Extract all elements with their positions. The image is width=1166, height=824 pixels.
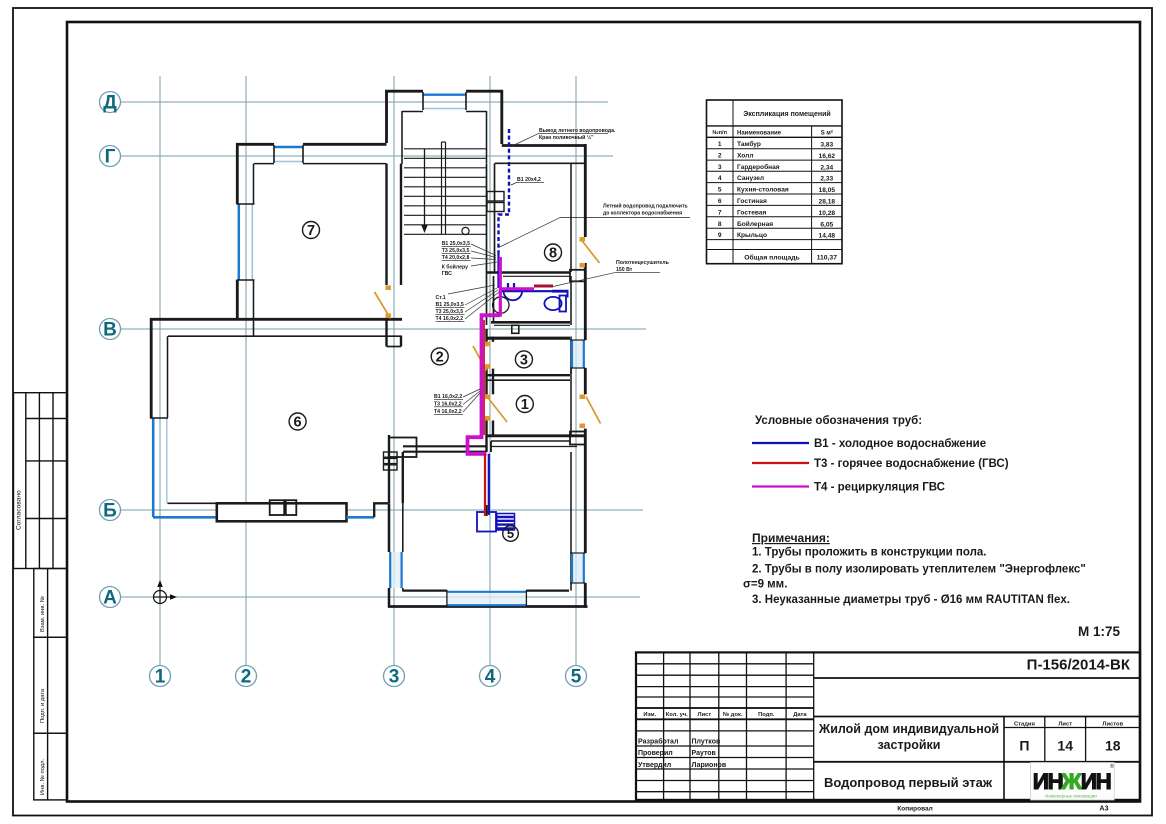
svg-text:Гостевая: Гостевая xyxy=(737,209,767,216)
svg-text:1. Трубы проложить в конструкц: 1. Трубы проложить в конструкции пола. xyxy=(752,547,987,559)
svg-text:Кол. уч.: Кол. уч. xyxy=(666,712,688,718)
svg-text:14: 14 xyxy=(1057,738,1073,754)
svg-text:ГВС: ГВС xyxy=(442,271,452,277)
svg-text:Инженерные инновации: Инженерные инновации xyxy=(1045,794,1097,799)
svg-text:застройки: застройки xyxy=(878,738,941,752)
svg-text:6,05: 6,05 xyxy=(820,221,833,228)
svg-text:5: 5 xyxy=(507,526,514,541)
svg-text:σ=9 мм.: σ=9 мм. xyxy=(743,579,787,591)
svg-text:А: А xyxy=(103,588,117,609)
svg-text:5: 5 xyxy=(571,667,582,688)
svg-text:П: П xyxy=(1019,738,1029,754)
svg-text:1: 1 xyxy=(718,141,722,148)
svg-text:Лист: Лист xyxy=(1058,722,1072,728)
svg-text:1: 1 xyxy=(521,397,529,413)
svg-text:Тамбур: Тамбур xyxy=(737,140,761,148)
svg-text:110,37: 110,37 xyxy=(817,255,838,262)
svg-text:Изм.: Изм. xyxy=(643,712,656,718)
svg-text:6: 6 xyxy=(718,198,722,205)
svg-text:Стадия: Стадия xyxy=(1014,722,1035,728)
svg-text:10,28: 10,28 xyxy=(819,210,836,217)
svg-text:Инв. № подл.: Инв. № подл. xyxy=(40,759,46,795)
svg-text:В: В xyxy=(103,320,117,341)
svg-text:16,62: 16,62 xyxy=(819,153,836,160)
svg-text:14,48: 14,48 xyxy=(819,233,836,240)
svg-text:до коллектора водоснабжения: до коллектора водоснабжения xyxy=(603,210,682,217)
svg-text:Взам. инв. №: Взам. инв. № xyxy=(40,596,46,632)
svg-text:№п/п: №п/п xyxy=(712,130,727,136)
svg-text:Б: Б xyxy=(103,501,117,522)
svg-text:Условные обозначения труб:: Условные обозначения труб: xyxy=(755,415,922,427)
svg-text:Летний водопровод подключить: Летний водопровод подключить xyxy=(603,203,688,210)
svg-text:№ док.: № док. xyxy=(723,712,743,718)
svg-text:Подп. и дата: Подп. и дата xyxy=(40,688,46,723)
svg-text:Кухня-столовая: Кухня-столовая xyxy=(737,187,789,194)
svg-text:S м²: S м² xyxy=(821,130,833,137)
svg-text:28,18: 28,18 xyxy=(819,199,836,206)
svg-text:Ж: Ж xyxy=(1060,769,1082,794)
svg-text:Листов: Листов xyxy=(1102,722,1123,728)
svg-text:2: 2 xyxy=(436,349,444,365)
svg-text:Холл: Холл xyxy=(737,152,754,159)
svg-text:7: 7 xyxy=(718,209,722,216)
svg-text:Утвердил: Утвердил xyxy=(638,762,671,769)
svg-text:Наименование: Наименование xyxy=(737,131,782,137)
svg-text:Жилой дом индивидуальной: Жилой дом индивидуальной xyxy=(818,722,999,736)
svg-text:4: 4 xyxy=(485,667,496,688)
svg-text:3,83: 3,83 xyxy=(820,142,833,149)
svg-text:18: 18 xyxy=(1105,738,1121,754)
svg-text:Санузел: Санузел xyxy=(737,175,764,182)
svg-text:3: 3 xyxy=(718,164,722,171)
svg-text:Копировал: Копировал xyxy=(897,806,932,813)
svg-text:®: ® xyxy=(1110,763,1114,770)
svg-text:3: 3 xyxy=(520,352,528,368)
svg-text:Подп.: Подп. xyxy=(758,712,775,718)
svg-text:М 1:75: М 1:75 xyxy=(1078,624,1121,639)
svg-text:Г: Г xyxy=(105,147,116,168)
svg-text:2. Трубы в полу изолировать ут: 2. Трубы в полу изолировать утеплителем … xyxy=(752,564,1086,576)
svg-text:6: 6 xyxy=(294,415,302,431)
svg-text:Кран поливочный ½": Кран поливочный ½" xyxy=(539,134,594,141)
svg-text:А3: А3 xyxy=(1100,806,1109,813)
svg-text:Т3 - горячее водоснабжение (ГВ: Т3 - горячее водоснабжение (ГВС) xyxy=(814,458,1009,470)
svg-text:Гостиная: Гостиная xyxy=(737,198,767,205)
svg-text:Т4 - рециркуляция ГВС: Т4 - рециркуляция ГВС xyxy=(814,482,945,494)
svg-text:2,34: 2,34 xyxy=(820,164,833,171)
svg-text:3. Неуказанные диаметры труб -: 3. Неуказанные диаметры труб - Ø16 мм RA… xyxy=(752,594,1070,606)
svg-text:Плутков: Плутков xyxy=(692,739,721,746)
svg-text:7: 7 xyxy=(307,223,315,239)
svg-text:ИН: ИН xyxy=(1033,769,1063,794)
svg-text:Гардеробная: Гардеробная xyxy=(737,163,780,171)
svg-text:Проверил: Проверил xyxy=(638,750,673,757)
svg-text:В1 - холодное водоснабжение: В1 - холодное водоснабжение xyxy=(814,438,986,450)
svg-text:Ст.1: Ст.1 xyxy=(436,295,446,301)
svg-text:Общая площадь: Общая площадь xyxy=(744,254,800,262)
svg-text:Примечания:: Примечания: xyxy=(752,531,830,545)
svg-text:18,05: 18,05 xyxy=(819,187,836,194)
svg-text:П-156/2014-ВК: П-156/2014-ВК xyxy=(1027,657,1131,674)
svg-text:2: 2 xyxy=(718,152,722,159)
svg-text:Раутов: Раутов xyxy=(692,750,717,757)
svg-text:ИН: ИН xyxy=(1081,769,1111,794)
svg-text:Д: Д xyxy=(103,93,117,114)
svg-text:Крыльцо: Крыльцо xyxy=(737,232,767,239)
svg-text:К бойлеру: К бойлеру xyxy=(442,264,468,271)
svg-text:8: 8 xyxy=(549,246,557,262)
svg-text:Разработал: Разработал xyxy=(638,738,678,746)
svg-text:Водопровод первый этаж: Водопровод первый этаж xyxy=(824,775,993,790)
svg-text:Лист: Лист xyxy=(698,712,712,718)
svg-text:1: 1 xyxy=(155,667,166,688)
svg-text:9: 9 xyxy=(718,232,722,239)
svg-text:2,33: 2,33 xyxy=(820,176,833,183)
svg-text:Ларионов: Ларионов xyxy=(692,762,727,769)
svg-text:Дата: Дата xyxy=(793,712,807,718)
svg-text:Согласовано: Согласовано xyxy=(16,490,23,530)
svg-text:2: 2 xyxy=(241,667,252,688)
svg-text:3: 3 xyxy=(389,667,400,688)
svg-text:Экспликация помещений: Экспликация помещений xyxy=(743,110,830,118)
svg-text:Бойлерная: Бойлерная xyxy=(737,220,773,228)
svg-text:Полотенцесушитель: Полотенцесушитель xyxy=(616,260,669,266)
svg-text:8: 8 xyxy=(718,221,722,228)
svg-text:4: 4 xyxy=(718,175,722,182)
svg-text:5: 5 xyxy=(718,187,722,194)
